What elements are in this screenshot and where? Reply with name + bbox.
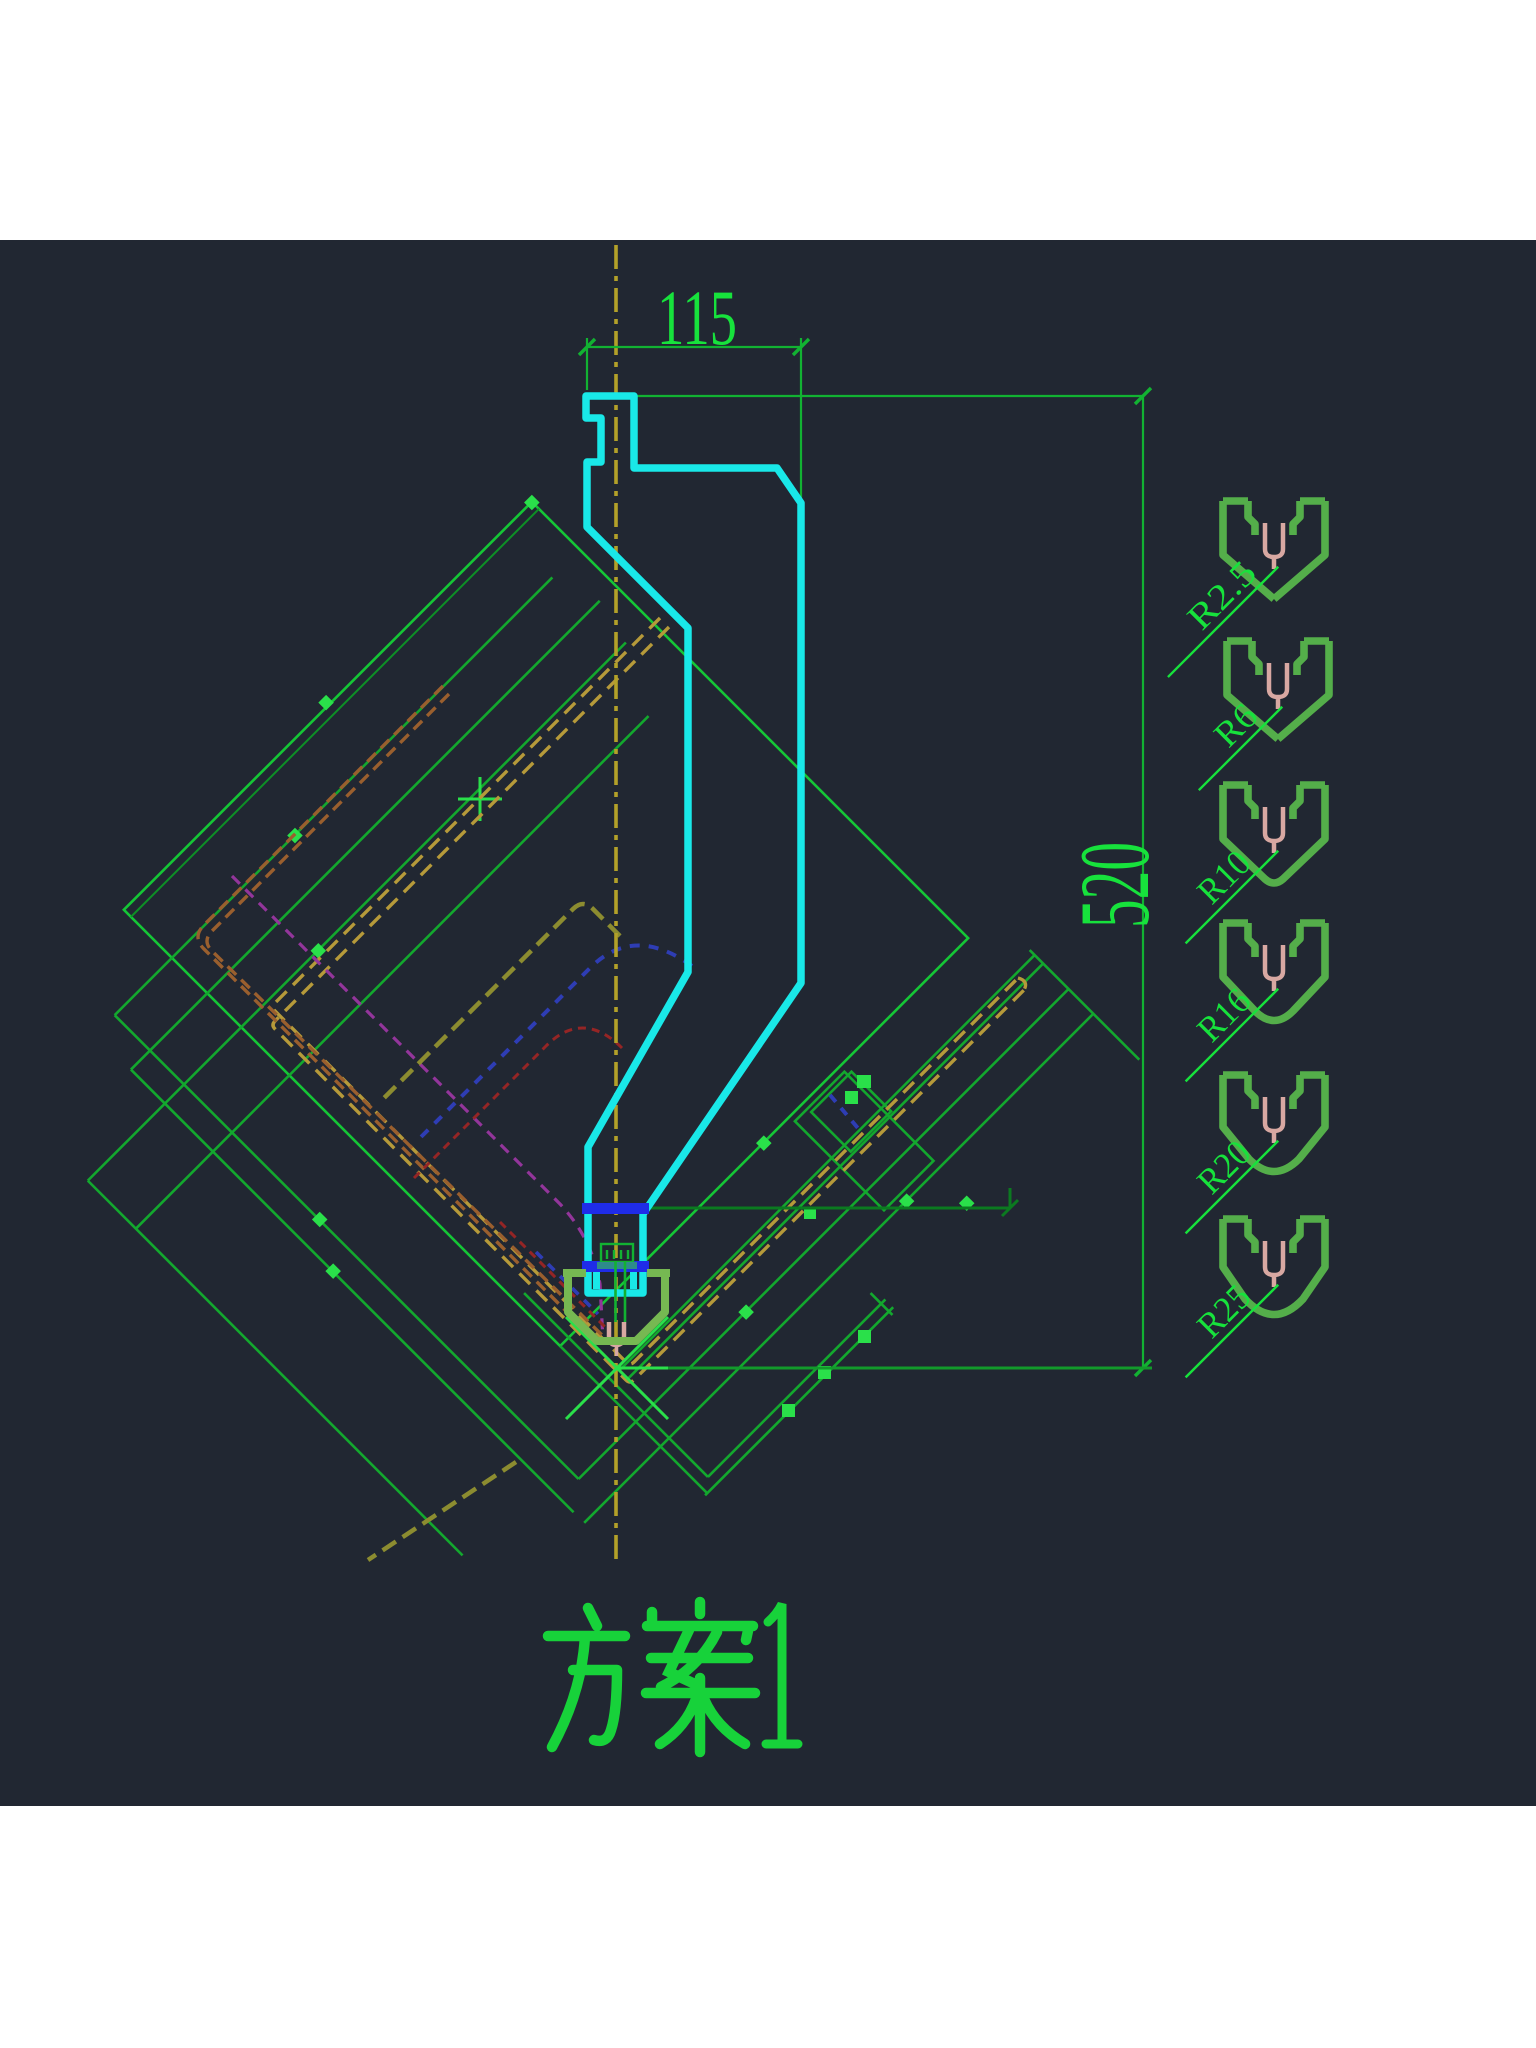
svg-text:115: 115 [657,274,737,361]
svg-text:520: 520 [1059,842,1170,928]
